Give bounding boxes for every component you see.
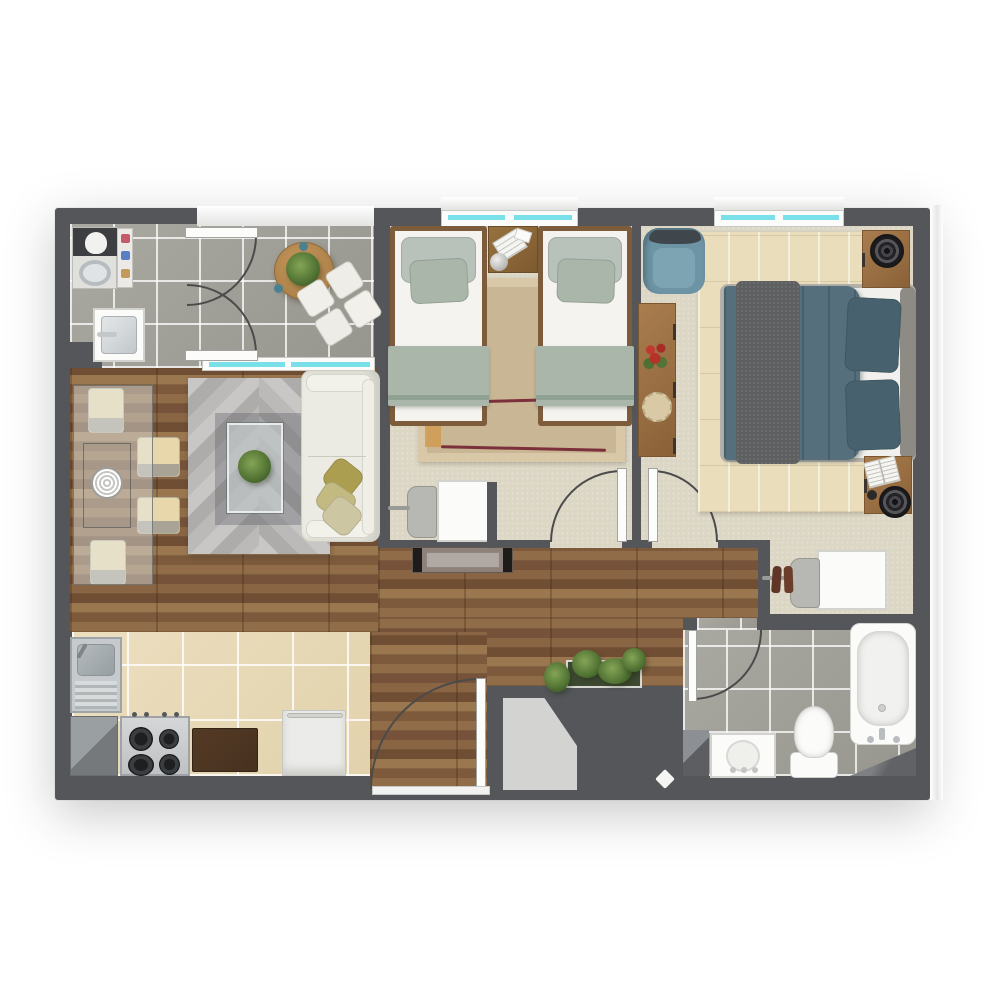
- shoe: [771, 566, 782, 594]
- washer-drum: [79, 260, 111, 286]
- kitchen-sink-unit: [70, 637, 122, 713]
- speaker-lamp-top: [870, 234, 904, 268]
- planter-foliage: [544, 662, 570, 692]
- window-glass: [783, 215, 839, 220]
- drawer-handle: [864, 479, 867, 493]
- vanity-knob: [752, 767, 758, 773]
- master-window-sill: [714, 197, 844, 210]
- twin-bed-right-blanket: [536, 346, 634, 406]
- washer-lid-panel: [73, 228, 118, 256]
- console-handle: [673, 382, 676, 398]
- window-glass: [721, 215, 775, 220]
- corner-shelf-face: [683, 730, 709, 776]
- kids-desk-chair: [407, 486, 437, 538]
- stove-burner: [159, 729, 179, 749]
- spiral-centerpiece-plate: [91, 467, 123, 499]
- refrigerator: [282, 710, 346, 776]
- speaker-lamp-bottom: [879, 486, 911, 518]
- french-door-leaf-top: [185, 227, 258, 238]
- master-pillow-top: [844, 297, 902, 374]
- stove-burner: [128, 754, 154, 776]
- ball-lamp: [490, 253, 508, 271]
- tub-drain: [878, 704, 886, 712]
- dark-counter-board: [192, 728, 258, 772]
- bathroom-vanity: [710, 733, 776, 778]
- rug-maroon-line: [441, 445, 606, 451]
- bed-pillow-small: [409, 258, 469, 305]
- console-glass-top: [426, 552, 500, 568]
- utility-sink: [93, 308, 145, 362]
- balcony-open-edge: [197, 206, 374, 226]
- woven-plate: [642, 392, 672, 422]
- kids-bedroom-window: [441, 210, 578, 227]
- exterior-edge-highlight: [930, 205, 943, 800]
- french-door-leaf-bottom: [185, 350, 258, 361]
- master-armchair: [643, 228, 705, 294]
- faucet: [97, 332, 117, 337]
- detergent-bottles: [121, 269, 130, 278]
- blanket-fold: [388, 395, 489, 400]
- stove-knob: [162, 712, 167, 717]
- window-glass: [209, 362, 285, 367]
- blanket-fold: [536, 395, 634, 400]
- kids-bedroom-door: [617, 468, 627, 542]
- vanity-knob: [730, 767, 736, 773]
- coffee-cup: [867, 490, 877, 500]
- tub-faucet: [879, 728, 885, 740]
- toilet: [790, 706, 838, 778]
- bed-pillow-small: [556, 258, 616, 304]
- console-handle: [673, 324, 676, 340]
- bathtub: [850, 623, 916, 745]
- washer-lid: [85, 232, 107, 254]
- gas-stove: [120, 716, 190, 776]
- bathroom-door-threshold: [697, 618, 757, 630]
- drawer-handle: [862, 253, 865, 267]
- entry-threshold: [372, 786, 490, 795]
- armchair-back-band: [649, 230, 701, 244]
- table-stool-dot: [274, 284, 283, 293]
- kitchen-corner-counter: [70, 716, 118, 776]
- detergent-bottles: [121, 251, 130, 260]
- chair-leg-bar: [388, 506, 410, 510]
- master-bedroom-door: [648, 468, 658, 542]
- kids-nightstand: [488, 226, 538, 273]
- tub-handle: [867, 736, 874, 743]
- stove-knob: [132, 712, 137, 717]
- master-desk-chair: [790, 558, 820, 608]
- table-stool-dot: [299, 242, 308, 251]
- bathroom-door: [688, 630, 697, 702]
- sofa-back-rail: [362, 379, 375, 535]
- master-pillow-bottom: [845, 379, 901, 451]
- master-gray-throw: [736, 281, 800, 464]
- shoe: [784, 566, 794, 593]
- fridge-handle: [287, 713, 343, 718]
- toilet-bowl: [794, 706, 834, 758]
- entry-door: [476, 678, 486, 790]
- stove-knob: [174, 712, 179, 717]
- sofa-seat-seam: [308, 456, 366, 457]
- laundry-shelf: [117, 228, 133, 288]
- master-console: [638, 303, 676, 457]
- tub-handle: [893, 736, 900, 743]
- console-end-cap: [503, 548, 512, 572]
- window-glass: [448, 215, 505, 220]
- detergent-bottles: [121, 234, 130, 243]
- console-handle: [673, 438, 676, 454]
- window-glass: [514, 215, 572, 220]
- desk-nook-wall-stub: [487, 482, 497, 548]
- vanity-knob: [741, 767, 747, 773]
- master-headboard: [900, 286, 916, 460]
- master-bedroom-window: [714, 210, 844, 227]
- planter-foliage: [622, 648, 646, 672]
- kids-desk: [437, 480, 490, 542]
- master-desk: [817, 550, 887, 610]
- red-flower-arrangement: [640, 338, 670, 372]
- window-glass: [291, 362, 370, 367]
- bathroom-corner-shelf-left: [683, 730, 709, 776]
- armchair-seat: [653, 248, 695, 288]
- floor-plan-canvas: [0, 0, 1000, 1000]
- drainboard-ridges: [75, 681, 117, 709]
- kids-window-sill: [441, 197, 578, 210]
- console-end-cap: [413, 548, 422, 572]
- media-console: [412, 547, 513, 573]
- stove-burner: [159, 754, 180, 775]
- coffee-table-plant: [238, 450, 271, 483]
- twin-bed-left-blanket: [388, 346, 489, 406]
- stove-knob: [144, 712, 149, 717]
- stove-burner: [129, 727, 153, 751]
- washing-machine: [72, 227, 117, 289]
